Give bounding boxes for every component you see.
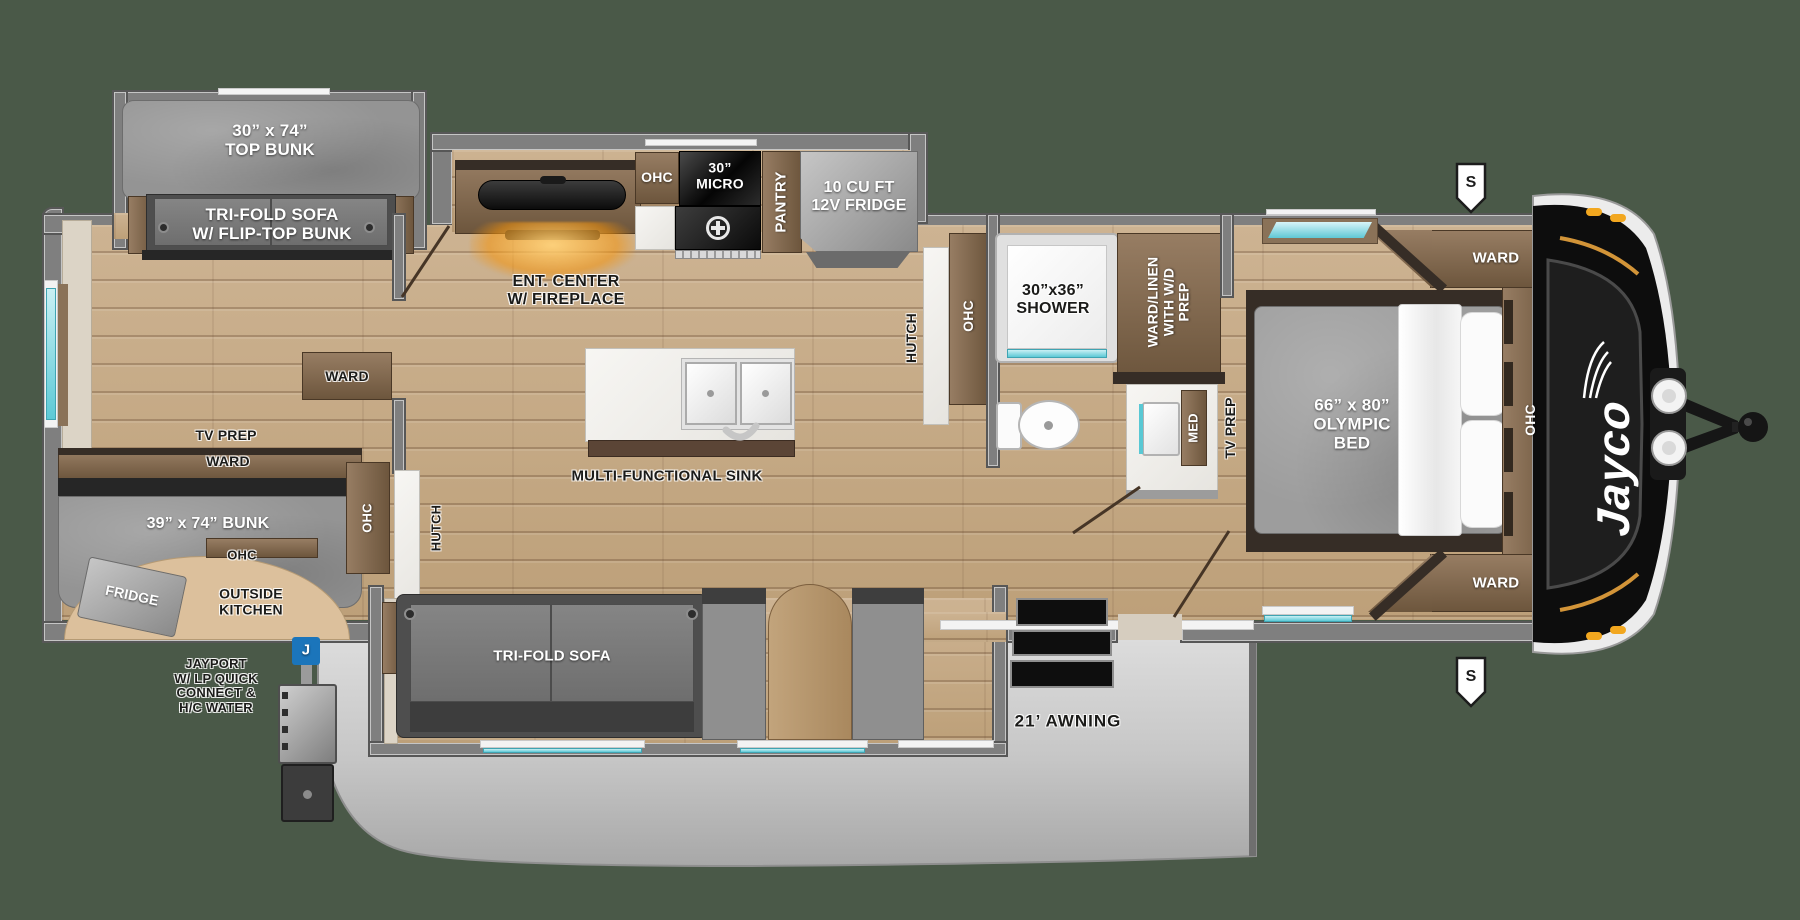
fireplace-glow: [470, 222, 635, 280]
marker-light-2: [1610, 214, 1626, 222]
entry-door-opening: [1118, 614, 1182, 640]
marker-light-1: [1586, 208, 1602, 216]
sink-drain-left: [707, 390, 714, 397]
ent-center-tv: [478, 180, 626, 210]
jayport-badge-letter: J: [302, 643, 311, 660]
toilet-flush: [1044, 421, 1053, 430]
bedroom-ohc-label: OHC: [1523, 404, 1539, 436]
jayport-pole: [301, 664, 312, 686]
ward-top-label: WARD: [1473, 251, 1520, 268]
bunk-sofa-rail: [142, 250, 400, 260]
multi-sink-label: MULTI-FUNCTIONAL SINK: [571, 469, 762, 486]
burner-cross-h: [711, 226, 725, 230]
hitch-ball-highlight: [1744, 418, 1752, 426]
sofa-knob-right: [686, 608, 698, 620]
olympic-bed-label: 66” x 80” OLYMPIC BED: [1313, 395, 1390, 452]
marker-light-3: [1586, 632, 1602, 640]
rear-window-sill: [58, 284, 68, 426]
sofa-slide-right-wall: [992, 585, 1008, 757]
galley-roof-vent: [645, 139, 757, 146]
bunk-sofa-knob-right: [364, 222, 375, 233]
hitch-bar-top: [1652, 384, 1738, 433]
outside-ohc-label: OHC: [227, 549, 257, 564]
trifold-sofa-seat: [410, 702, 694, 732]
hitch-stem: [1732, 422, 1746, 432]
trifold-bunk-label: TRI-FOLD SOFA W/ FLIP-TOP BUNK: [192, 205, 351, 243]
micro-label: 30” MICRO: [696, 160, 744, 191]
propane-tank-1: [1652, 379, 1686, 413]
slide-window-2-glass: [740, 748, 865, 753]
vanity-sink: [1142, 402, 1180, 456]
bed-divider-wall: [1220, 213, 1234, 298]
floorplan-canvas: 30” x 74” TOP BUNK TRI-FOLD SOFA W/ FLIP…: [0, 0, 1800, 920]
bed-window-glass: [1268, 222, 1372, 238]
rear-ward-label: WARD: [206, 454, 250, 470]
vanity-base: [1126, 490, 1218, 499]
vanity-sink-accent: [1139, 404, 1143, 454]
entry-step-2: [1012, 630, 1112, 656]
bedroom-tvprep-label: TV PREP: [1223, 397, 1239, 458]
grill-knobs: [282, 692, 288, 754]
bath-ohc-label: OHC: [961, 300, 977, 332]
ent-center-top-trim: [455, 160, 641, 170]
slide-window-3: [898, 740, 994, 748]
galley-counter: [635, 206, 675, 250]
ward-linen-label: WARD/LINEN WITH W/D PREP: [1145, 257, 1192, 348]
bed-window-bottom: [1262, 606, 1354, 615]
propane-tank-2: [1652, 431, 1686, 465]
mid-hutch-label: HUTCH: [430, 505, 445, 552]
propane-tray: [1650, 368, 1686, 480]
dinette-bench-left-top: [702, 588, 766, 604]
bunk-slide-vent: [218, 88, 330, 95]
hitch-ball: [1738, 412, 1768, 442]
cap-accent-bottom: [1560, 574, 1638, 610]
ward-bottom-label: WARD: [1473, 576, 1520, 593]
mid-ward-label: WARD: [325, 369, 369, 385]
bath-hutch-counter: [923, 247, 949, 425]
mid-ohc-label: OHC: [361, 503, 376, 533]
ohc-slot-3: [1504, 428, 1513, 472]
awning-edge: [1249, 628, 1256, 856]
ohc-slot-1: [1504, 300, 1513, 344]
grill-base-knob: [303, 790, 312, 799]
propane-tank-1-cap: [1662, 389, 1676, 403]
outside-kitchen-label: OUTSIDE KITCHEN: [219, 586, 283, 617]
sink-drain-right: [762, 390, 769, 397]
entry-step-3: [1010, 660, 1114, 688]
entry-step-1: [1016, 598, 1108, 626]
rear-divider-wall-bottom: [392, 398, 406, 474]
range-vent: [675, 250, 761, 259]
awning-label: 21’ AWNING: [1015, 711, 1122, 730]
ohc-slot-2: [1504, 362, 1513, 406]
shower-door-glass: [1007, 349, 1107, 358]
sofa-knob-left: [404, 608, 416, 620]
bed-blanket: [1398, 304, 1462, 536]
propane-tank-2-cap: [1662, 441, 1676, 455]
dinette-bench-right-top: [852, 588, 924, 604]
ent-center-label: ENT. CENTER W/ FIREPLACE: [507, 273, 624, 309]
jayport-label: JAYPORT W/ LP QUICK CONNECT & H/C WATER: [174, 657, 258, 715]
rear-bunk-rail: [58, 478, 362, 496]
rear-window-glass: [46, 288, 56, 420]
outside-ohc-cabinet: [206, 538, 318, 558]
slide-window-2: [737, 740, 868, 748]
shower-label: 30”x36” SHOWER: [1016, 282, 1089, 318]
top-bunk-label: 30” x 74” TOP BUNK: [225, 121, 315, 159]
fridge-base: [806, 252, 910, 268]
bed-window-bottom-glass: [1264, 615, 1352, 622]
rear-divider-wall-top: [392, 213, 406, 301]
street-side-bottom-letter: S: [1466, 668, 1477, 686]
bunk-sofa-knob-left: [158, 222, 169, 233]
med-label: MED: [1187, 413, 1202, 443]
ent-center-tv-stand: [540, 176, 566, 184]
dinette-bench-right: [852, 588, 924, 740]
bed-window-vent: [1266, 209, 1376, 215]
trifold-sofa-label: TRI-FOLD SOFA: [493, 649, 611, 666]
marker-light-4: [1610, 626, 1626, 634]
hitch-bar-bottom: [1652, 421, 1738, 466]
rear-bunk-label: 39” x 74” BUNK: [147, 515, 270, 533]
island-base: [588, 440, 795, 457]
slide-window-1-glass: [483, 748, 642, 753]
bed-pillow-bottom: [1460, 420, 1506, 528]
bed-pillow-top: [1460, 312, 1506, 416]
ohc-slot-4: [1504, 492, 1513, 536]
dinette-bench-left: [702, 588, 766, 740]
eagle-emblem-icon: [1584, 342, 1611, 398]
rear-tvprep-label: TV PREP: [195, 428, 256, 444]
cap-accent-top: [1560, 238, 1638, 274]
bath-hutch-label: HUTCH: [904, 313, 920, 363]
slide-window-1: [480, 740, 645, 748]
dinette-table: [768, 584, 852, 740]
jayco-logo: Jayco: [1588, 398, 1640, 539]
fridge-label: 10 CU FT 12V FRIDGE: [811, 179, 906, 215]
street-side-top-letter: S: [1466, 174, 1477, 192]
pantry-label: PANTRY: [774, 171, 791, 232]
ward-linen-base: [1113, 372, 1225, 384]
galley-ohc-label: OHC: [641, 170, 673, 186]
